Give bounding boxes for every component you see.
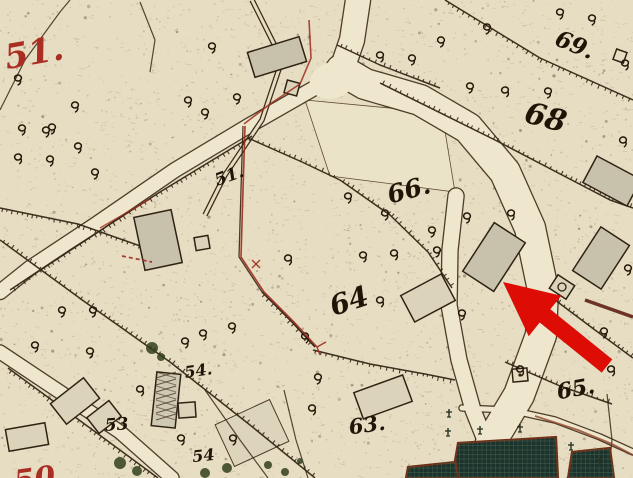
garden-plot [568,448,614,478]
building [178,402,196,418]
tree-clump [132,466,142,476]
building [194,235,210,250]
barn-building [151,372,181,428]
tree-clump [264,461,272,469]
parcel-label-parcel-63: 63. [347,410,387,440]
tree-clump [200,468,210,478]
parcel-label-parcel-53: 53 [104,414,129,436]
tree-clump [297,458,303,464]
map-image[interactable]: 51.69.6866.51.6463.65.5354.5450 [0,0,633,478]
map-canvas: 51.69.6866.51.6463.65.5354.5450 [0,0,633,478]
tree-clump [157,353,165,361]
tree-clump [222,463,232,473]
tree-clump [146,342,158,354]
garden-plot [452,437,558,478]
parcel-label-parcel-54a: 54. [183,359,213,382]
tree-clump [114,457,126,469]
parcel-label-parcel-54b: 54 [191,445,215,466]
tree-clump [281,468,289,476]
